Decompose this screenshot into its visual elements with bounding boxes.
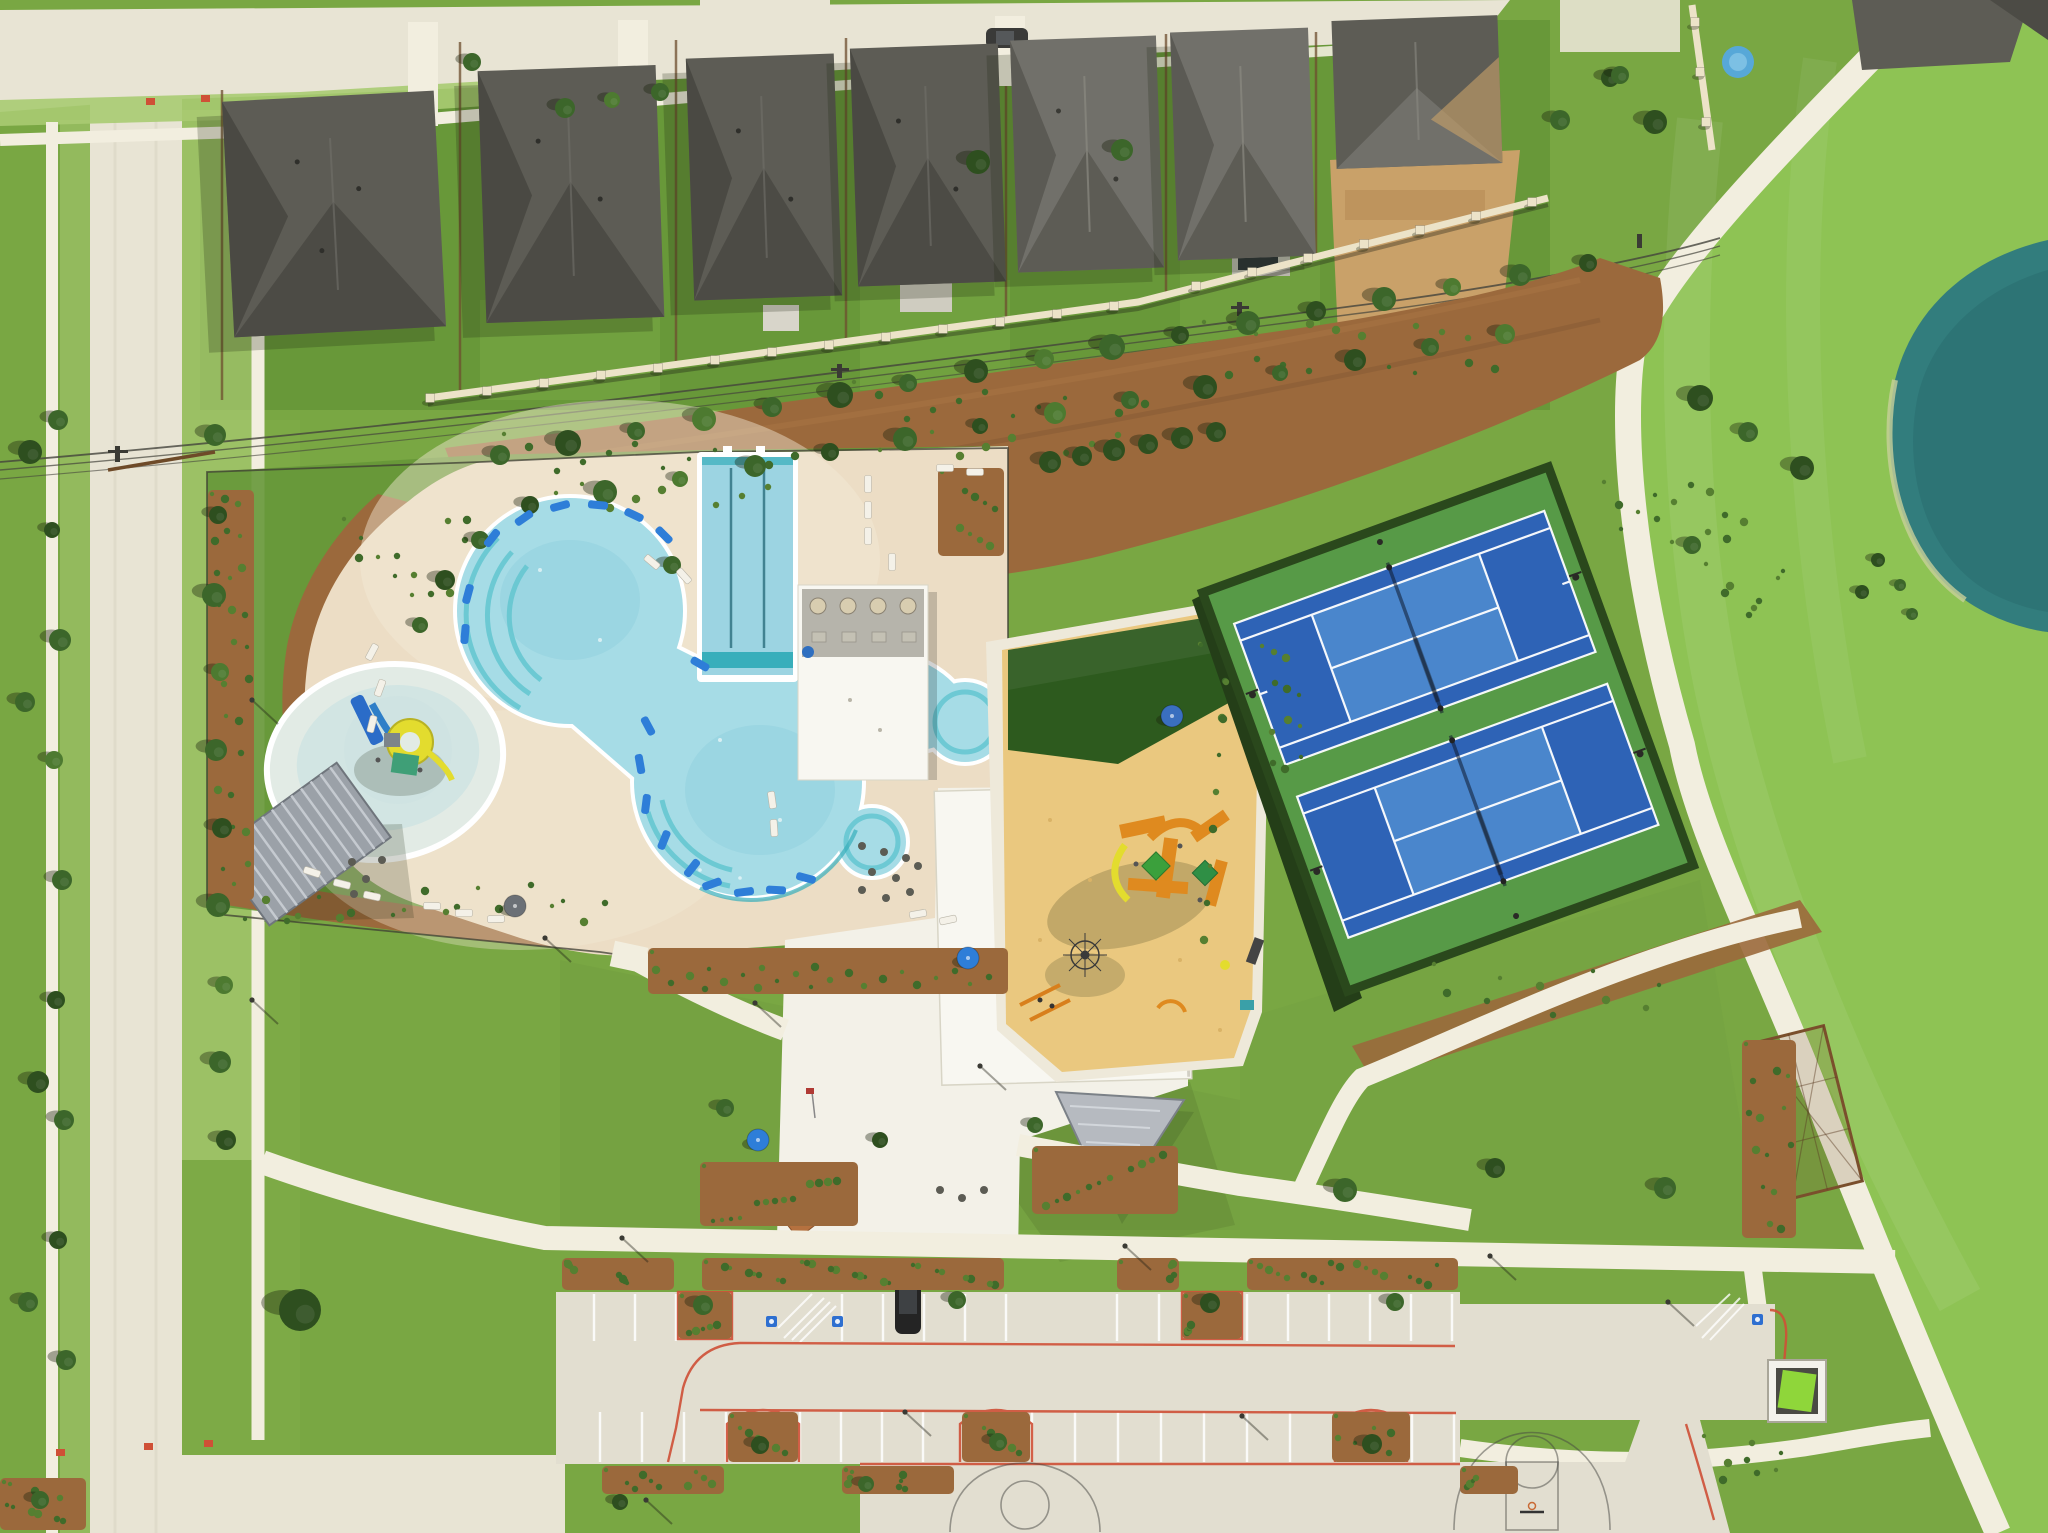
- lap-pool: [697, 446, 798, 682]
- deck-chair: [967, 469, 984, 476]
- deck-chair: [770, 819, 778, 836]
- patio-furniture: [936, 1186, 944, 1194]
- deck-chair: [456, 910, 473, 917]
- patio-furniture: [348, 858, 356, 866]
- planting-bed: [938, 468, 1004, 556]
- house-7-construction: [1331, 15, 1502, 169]
- deck-chair: [865, 476, 872, 493]
- cabana-building: [798, 585, 937, 780]
- planting-bed: [1742, 1040, 1796, 1238]
- patio-furniture: [350, 890, 358, 898]
- deck-chair: [889, 554, 896, 571]
- spider-climber: [1063, 933, 1107, 977]
- patio-furniture: [868, 868, 876, 876]
- planting-bed: [1460, 1466, 1518, 1494]
- patio-furniture: [914, 862, 922, 870]
- house-1: [196, 91, 447, 353]
- patio-furniture: [882, 894, 890, 902]
- patio-furniture: [906, 888, 914, 896]
- patio-furniture: [378, 856, 386, 864]
- planting-bed: [602, 1466, 724, 1494]
- dumpster-enclosure: [1768, 1360, 1826, 1422]
- deck-chair: [865, 502, 872, 519]
- patio-furniture: [980, 1186, 988, 1194]
- patio-furniture: [880, 848, 888, 856]
- patio-furniture: [892, 874, 900, 882]
- house-5: [986, 36, 1164, 288]
- deck-chair: [865, 528, 872, 545]
- scene-svg: [0, 0, 2048, 1533]
- planting-bed: [562, 1258, 674, 1290]
- patio-furniture: [858, 886, 866, 894]
- deck-chair: [937, 465, 954, 472]
- entrance-drive: [180, 1455, 565, 1533]
- patio-furniture: [958, 1194, 966, 1202]
- west-street: [90, 40, 182, 1533]
- aerial-photo: [0, 0, 2048, 1533]
- planting-bed: [1247, 1258, 1458, 1290]
- deck-chair: [423, 902, 440, 910]
- blue-equipment: [802, 646, 814, 658]
- planting-bed: [208, 490, 254, 900]
- pool-lounger: [766, 885, 786, 894]
- green-dumpster: [1778, 1370, 1817, 1412]
- patio-furniture: [902, 854, 910, 862]
- planting-bed: [700, 1162, 858, 1226]
- house-6: [1146, 28, 1316, 276]
- planting-bed: [648, 948, 1008, 994]
- patio-furniture: [362, 875, 370, 883]
- deck-chair: [487, 915, 504, 923]
- planting-bed: [1117, 1258, 1179, 1290]
- patio-furniture: [858, 842, 866, 850]
- flag: [806, 1088, 814, 1094]
- planting-bed: [1032, 1146, 1178, 1214]
- planting-bed: [702, 1258, 1004, 1290]
- house-3: [662, 53, 843, 315]
